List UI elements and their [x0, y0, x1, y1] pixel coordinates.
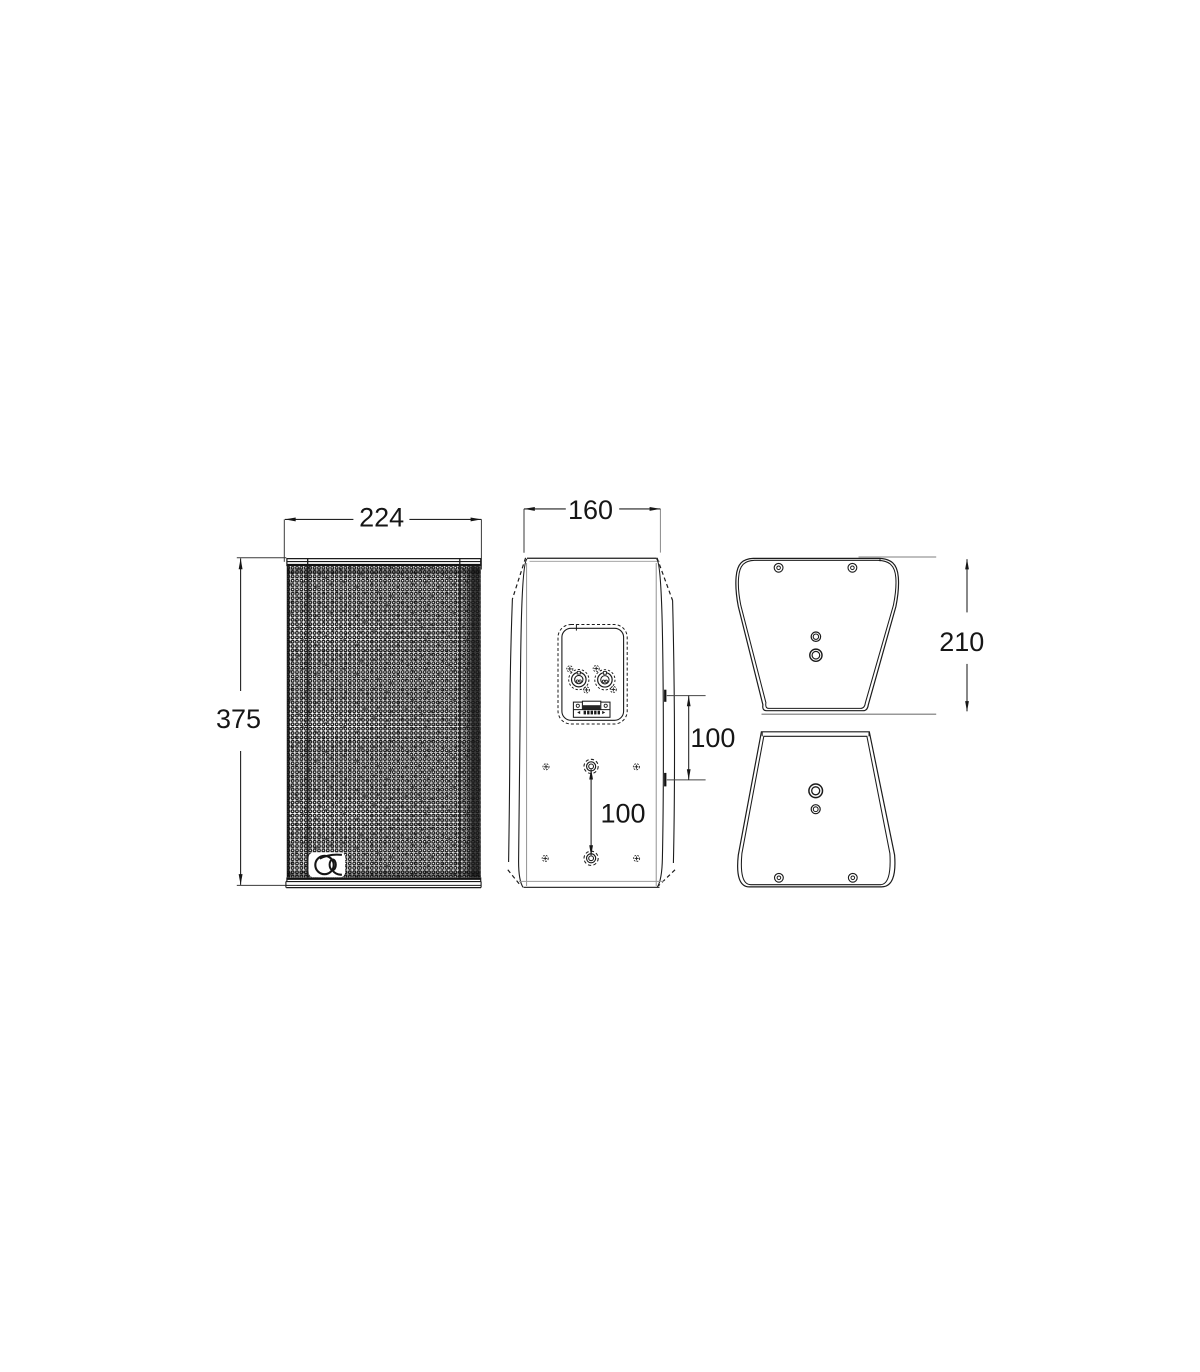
svg-text:100: 100 [600, 799, 645, 829]
svg-text:210: 210 [939, 627, 984, 657]
svg-text:160: 160 [568, 495, 613, 525]
svg-text:100: 100 [690, 723, 735, 753]
svg-text:224: 224 [359, 503, 404, 533]
svg-text:375: 375 [216, 704, 261, 734]
